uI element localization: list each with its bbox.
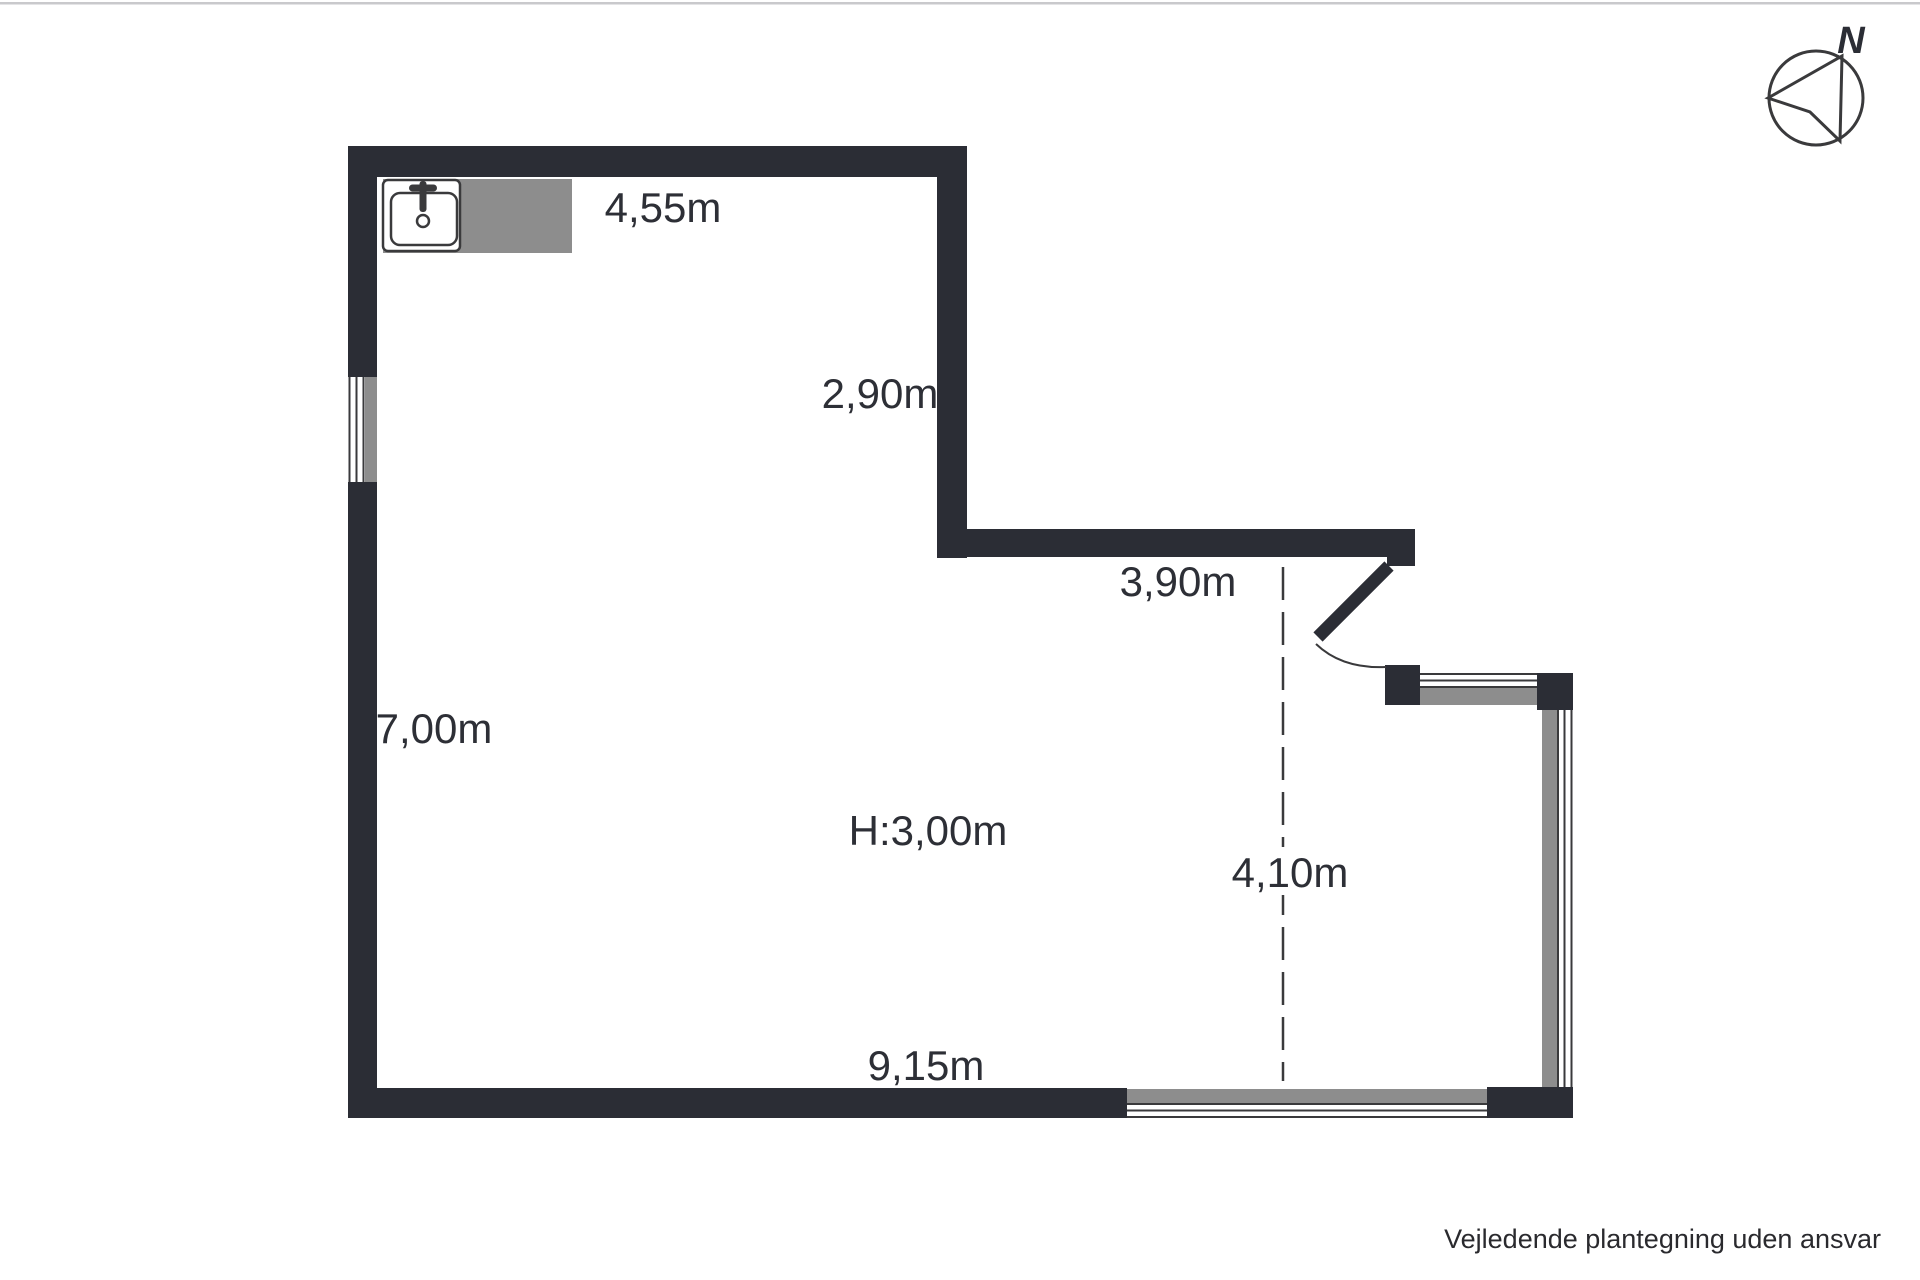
window-top-right-sill [1420,688,1537,705]
window-top-right [1420,673,1537,705]
dimension-label-ceiling-height: H:3,00m [849,807,1008,854]
window-bottom [1127,1089,1487,1118]
sink-drain [417,215,429,227]
dimension-label-top: 4,55m [605,184,722,231]
window-bottom-sill [1127,1089,1487,1103]
wall-mid-end-jamb [1387,529,1415,566]
compass: N [1768,20,1866,145]
wall-top [348,146,967,177]
window-right [1542,710,1573,1087]
wall-door-post [1385,665,1420,705]
wall-corner-top-right [1537,673,1573,710]
wall-left-upper [348,146,377,377]
wall-bottom [348,1088,1127,1118]
wall-upper-vertical [937,177,967,558]
door-leaf [1318,566,1389,637]
compass-circle [1769,51,1863,145]
wall-corner-bottom-right [1487,1087,1573,1118]
disclaimer-text: Vejledende plantegning uden ansvar [1444,1224,1881,1254]
kitchen-sink-icon [383,180,460,251]
wall-left-lower [348,482,377,1118]
faucet-stem [420,181,427,212]
floor-plan-page: 4,55m 2,90m 3,90m 7,00m H:3,00m 4,10m 9,… [0,0,1920,1280]
walls [348,146,1573,1118]
dimension-labels: 4,55m 2,90m 3,90m 7,00m H:3,00m 4,10m 9,… [376,184,1349,1089]
dimension-label-upper-right: 2,90m [822,370,939,417]
window-right-sill [1542,710,1557,1087]
door [1316,566,1389,667]
dimension-label-bottom: 9,15m [868,1042,985,1089]
door-swing-arc [1316,644,1386,667]
dimension-label-mid: 3,90m [1120,558,1237,605]
window-left-sill [365,377,377,482]
wall-mid-horizontal [937,529,1415,557]
dimension-label-right: 4,10m [1232,849,1349,896]
page-top-divider [0,2,1920,5]
floor-plan-canvas: 4,55m 2,90m 3,90m 7,00m H:3,00m 4,10m 9,… [0,0,1920,1280]
window-left [348,377,377,482]
kitchen-counter-group [383,179,572,253]
compass-north-label: N [1837,20,1866,62]
dimension-label-left: 7,00m [376,705,493,752]
